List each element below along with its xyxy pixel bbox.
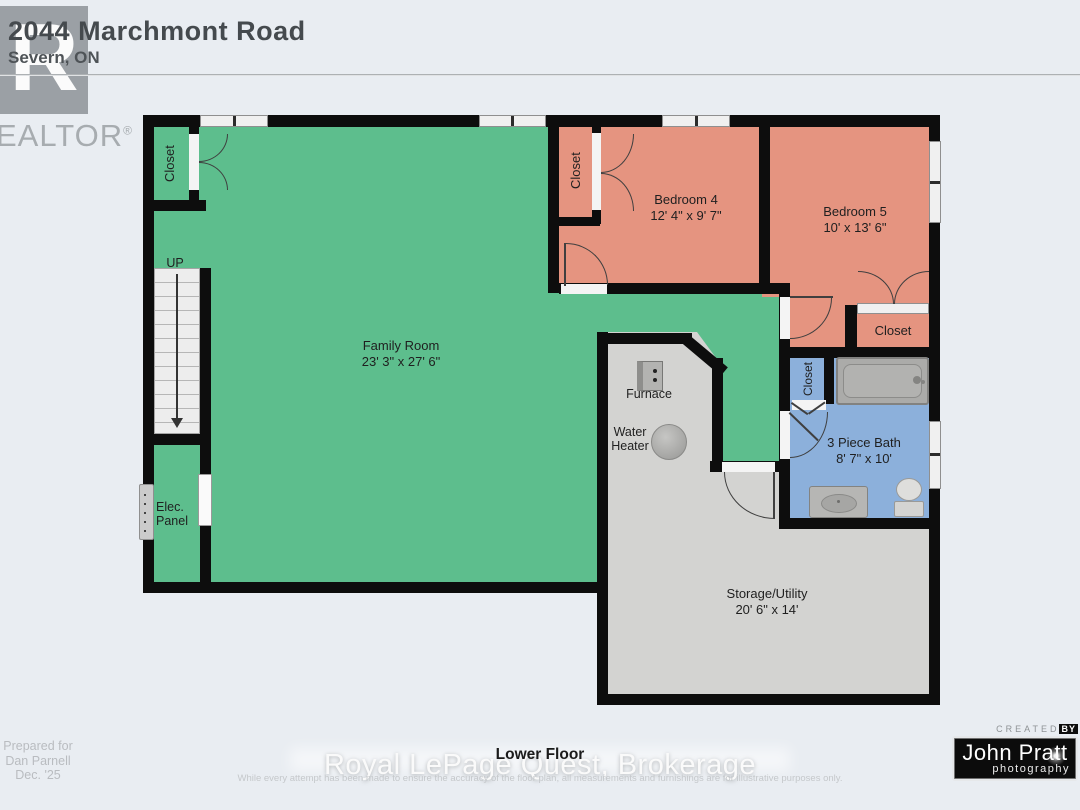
created-text: CREATED [996,724,1059,734]
toilet-bowl-icon [896,478,922,501]
bath-label: 3 Piece Bath 8' 7" x 10' [764,435,964,467]
wall [779,518,940,529]
toilet-tank-icon [894,501,924,517]
page-subtitle: Severn, ON [8,48,100,68]
wall [712,358,723,472]
photographer-logo: John Pratt photography [952,736,1078,781]
wall [143,582,608,593]
elec-label-line2: Panel [156,514,188,528]
family-room-name: Family Room [363,338,440,353]
vanity-sink-icon [809,486,868,518]
up-label: UP [160,256,190,270]
wall [143,434,211,445]
furnace-dot [653,369,657,373]
wall [200,268,211,593]
window-mullion [930,181,940,184]
closet-door-sill [857,303,929,314]
water-heater-label: Water Heater [600,425,660,453]
water-heater-line1: Water [614,425,647,439]
shower-head-icon [913,376,921,384]
door-opening [780,297,790,339]
wall [597,332,608,705]
furnace-label: Furnace [614,387,684,401]
disclaimer-text: While every attempt has been made to ens… [0,773,1080,784]
door-leaf [790,296,833,298]
by-badge: BY [1059,724,1078,734]
door-opening [561,284,607,294]
storage-dims: 20' 6" x 14' [735,602,798,617]
elec-label-line1: Elec. [156,500,184,514]
window-mullion [233,116,236,126]
stair-arrow-shaft [176,274,178,420]
door-leaf [773,472,775,519]
window-mullion [511,116,514,126]
water-heater-line2: Heater [611,439,649,453]
wall [597,333,692,344]
elec-panel-label: Elec. Panel [156,500,200,528]
family-room-dims: 23' 3" x 27' 6" [362,354,441,369]
closet-label-bedroom4: Closet [568,142,583,200]
header-divider [0,74,1080,76]
floor-title: Lower Floor [0,746,1080,764]
bathtub-basin [843,364,922,398]
family-room-label: Family Room 23' 3" x 27' 6" [301,338,501,370]
realtor-logo-word: EALTOR® [0,118,133,154]
wall [824,357,834,404]
floorplan-page: R EALTOR® 2044 Marchmont Road Severn, ON [0,0,1080,810]
stair-arrow-head-icon [171,418,183,428]
bedroom4-name: Bedroom 4 [654,192,718,207]
electrical-panel-dots [144,494,146,496]
sink-basin [821,494,857,513]
sliding-door [198,474,212,526]
wall [597,694,940,705]
bath-dims: 8' 7" x 10' [836,451,892,466]
storage-label: Storage/Utility 20' 6" x 14' [667,586,867,618]
faucet-dot [837,500,840,503]
sparkle-icon [1046,746,1066,766]
door-opening [189,134,199,190]
door-leaf [564,243,566,286]
photographer-credit: CREATEDBY John Pratt photography [952,724,1080,784]
furnace-dot [653,378,657,382]
closet-label-bath: Closet [801,356,815,402]
bedroom4-dims: 12' 4" x 9' 7" [650,208,721,223]
page-title: 2044 Marchmont Road [8,16,306,47]
created-by-line: CREATEDBY [996,724,1078,734]
wall [548,115,559,293]
electrical-panel-icon [139,484,154,540]
realtor-logo-word-text: EALTOR [0,118,123,153]
registered-mark: ® [123,124,133,138]
bedroom5-label: Bedroom 5 10' x 13' 6" [755,204,955,236]
storage-name: Storage/Utility [727,586,808,601]
bedroom5-dims: 10' x 13' 6" [823,220,886,235]
window-mullion [695,116,698,126]
closet-label-bedroom5: Closet [843,323,943,339]
bedroom5-name: Bedroom 5 [823,204,887,219]
bath-name: 3 Piece Bath [827,435,901,450]
closet-label-family: Closet [162,135,177,193]
